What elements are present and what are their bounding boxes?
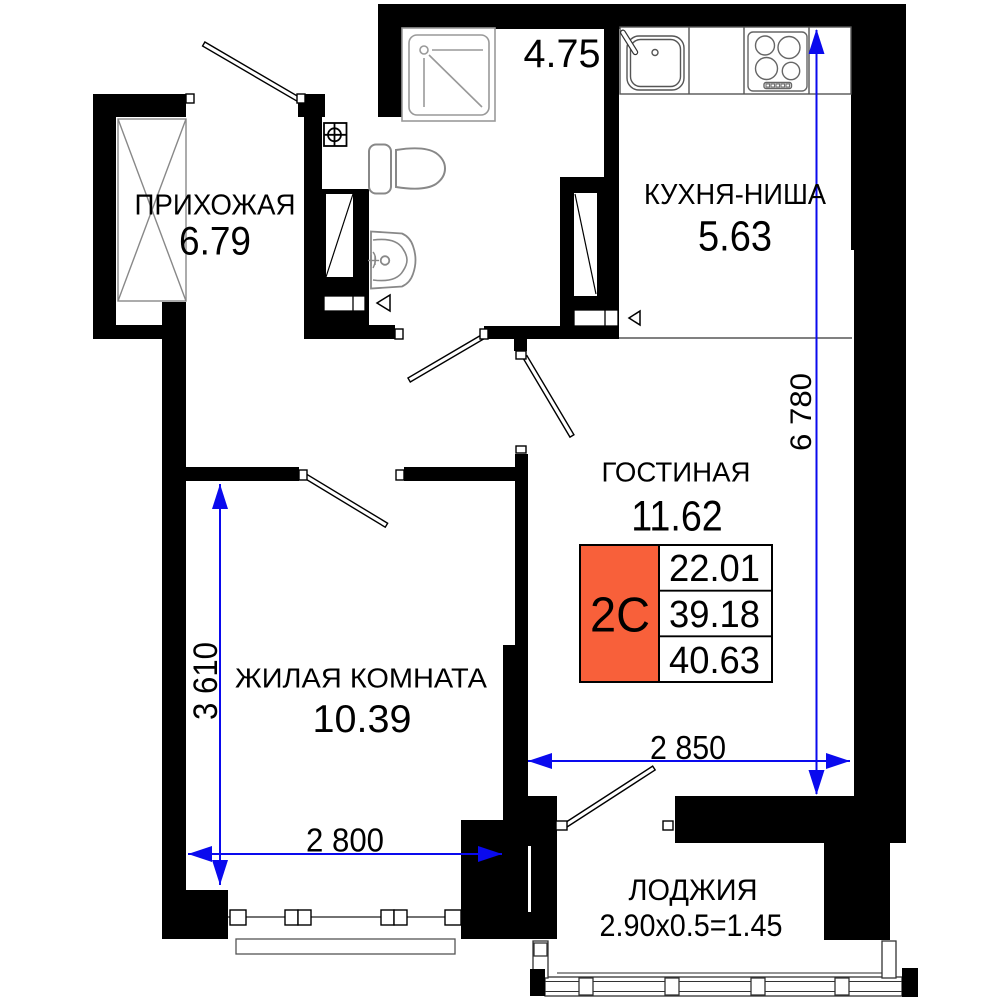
svg-text:ЛОДЖИЯ: ЛОДЖИЯ <box>629 874 758 907</box>
svg-text:10.39: 10.39 <box>313 698 412 741</box>
svg-text:КУХНЯ-НИША: КУХНЯ-НИША <box>644 179 827 211</box>
svg-text:11.62: 11.62 <box>631 493 723 541</box>
svg-text:2С: 2С <box>590 589 650 643</box>
svg-text:2 800: 2 800 <box>306 822 384 859</box>
svg-text:4.75: 4.75 <box>524 32 601 76</box>
svg-text:39.18: 39.18 <box>669 594 760 636</box>
svg-text:ЖИЛАЯ КОМНАТА: ЖИЛАЯ КОМНАТА <box>235 663 487 694</box>
svg-text:6 780: 6 780 <box>785 373 818 451</box>
svg-text:2.90x0.5=1.45: 2.90x0.5=1.45 <box>600 907 783 943</box>
svg-text:3 610: 3 610 <box>187 642 225 720</box>
svg-text:6.79: 6.79 <box>179 220 251 264</box>
svg-text:40.63: 40.63 <box>669 640 760 682</box>
svg-text:ПРИХОЖАЯ: ПРИХОЖАЯ <box>135 190 296 222</box>
svg-text:22.01: 22.01 <box>669 548 760 590</box>
svg-text:ГОСТИНАЯ: ГОСТИНАЯ <box>602 457 751 488</box>
svg-text:2 850: 2 850 <box>650 729 726 766</box>
svg-text:5.63: 5.63 <box>698 213 772 261</box>
